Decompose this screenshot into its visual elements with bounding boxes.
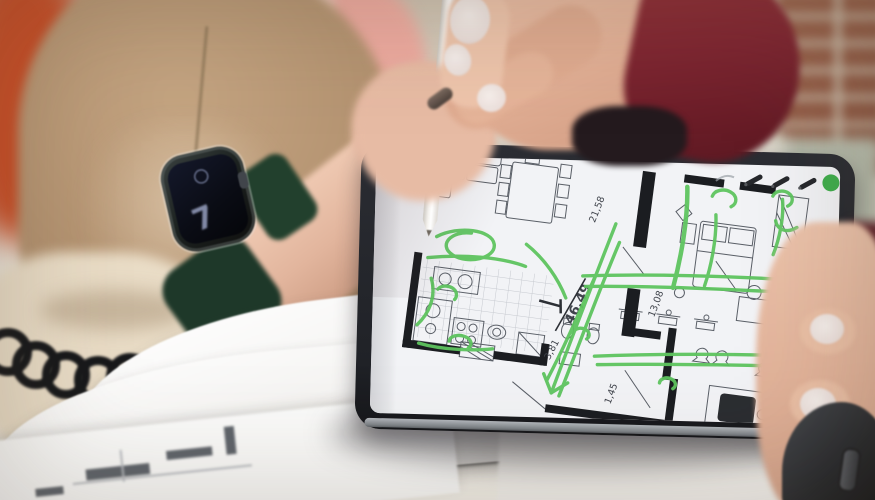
pen-icon <box>802 180 814 187</box>
smartwatch-screen: 7 <box>165 151 252 247</box>
watch-time-digit: 7 <box>187 199 220 239</box>
color-swatch <box>822 174 839 191</box>
pen-icon <box>748 177 760 184</box>
measurement-label: 21,58 <box>587 195 607 224</box>
drawing-app-toolbar <box>716 171 840 191</box>
pen-icon <box>775 178 787 185</box>
watch-complication-icon <box>192 167 210 185</box>
measurement-label: 13,08 <box>646 289 666 318</box>
photo-scene: 7 <box>0 0 875 500</box>
person2-sleeve-shadow <box>572 106 687 166</box>
measurement-label: 1,45 <box>603 382 621 406</box>
fingertip-nail <box>810 314 844 344</box>
mouse-scroll-wheel <box>837 447 862 493</box>
